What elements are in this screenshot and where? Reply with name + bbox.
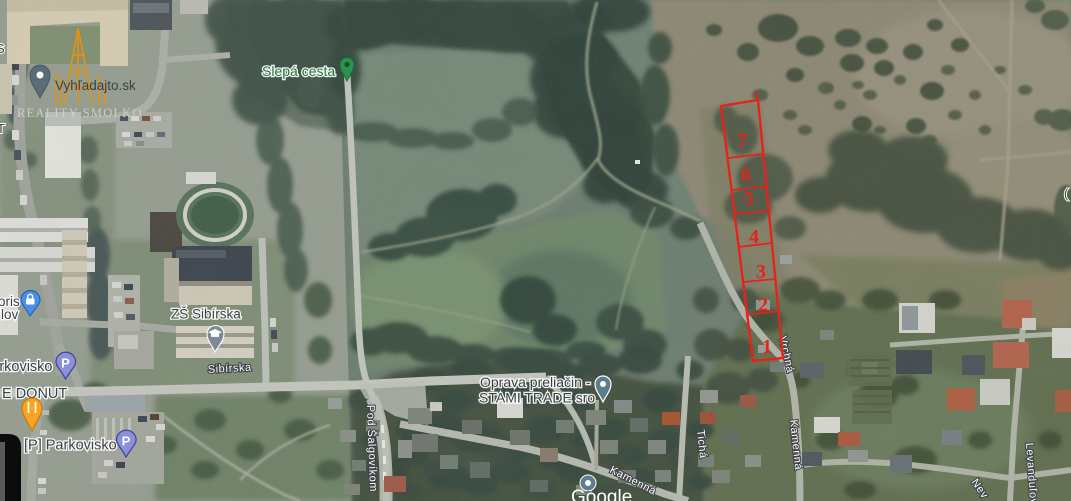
svg-text:ilov: ilov	[0, 307, 19, 322]
svg-text:STAMI TRADE sro: STAMI TRADE sro	[479, 390, 595, 406]
svg-text:ZŠ Sibírska: ZŠ Sibírska	[171, 307, 241, 322]
svg-text:Vyhľadajto.sk: Vyhľadajto.sk	[55, 78, 136, 93]
svg-text:4: 4	[749, 226, 759, 248]
svg-text:Google: Google	[571, 487, 632, 501]
svg-text:7: 7	[737, 130, 747, 152]
svg-text:2: 2	[758, 294, 768, 316]
svg-text:[P] Parkovisko: [P] Parkovisko	[24, 438, 117, 454]
svg-text:Oprava preliačin -: Oprava preliačin -	[480, 374, 591, 390]
svg-text:Parkovisko: Parkovisko	[0, 359, 53, 375]
svg-text:5: 5	[744, 188, 754, 210]
svg-text:(: (	[1064, 186, 1069, 201]
svg-text:Slepá cesta: Slepá cesta	[262, 63, 335, 79]
svg-text:P: P	[61, 356, 70, 371]
svg-text:REALITY SMOLKO: REALITY SMOLKO	[17, 106, 143, 120]
svg-text:Sibírska: Sibírska	[208, 362, 253, 376]
svg-text:6: 6	[741, 164, 751, 186]
svg-text:P: P	[122, 434, 131, 449]
svg-text:3: 3	[756, 261, 766, 283]
svg-text:T: T	[0, 121, 5, 136]
svg-text:1: 1	[762, 336, 772, 358]
svg-text:S: S	[0, 41, 5, 56]
